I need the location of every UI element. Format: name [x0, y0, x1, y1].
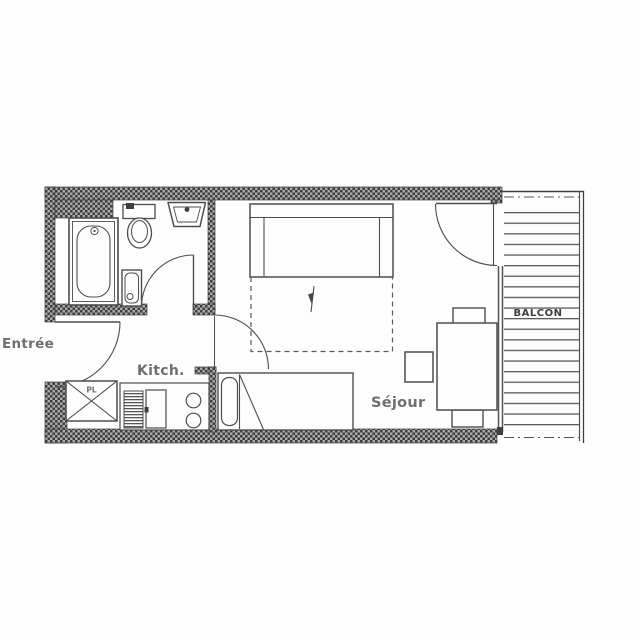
- washbasin-icon: [168, 203, 206, 227]
- balcony-label: BALCON: [514, 308, 563, 319]
- oven-icon: [145, 390, 167, 428]
- sofa-bed-icon: [250, 204, 393, 277]
- wall-bathroom-east: [208, 200, 215, 312]
- fridge-vent-icon: [124, 391, 143, 428]
- wall-bath-pillar: [55, 200, 113, 218]
- balcony-decking-icon: [504, 206, 579, 433]
- living-room-label: Séjour: [371, 395, 426, 411]
- facade-base: [497, 427, 503, 435]
- stool-icon: [405, 352, 433, 382]
- wall-bottom: [45, 429, 497, 443]
- chair-icon: [453, 308, 485, 324]
- entrance-label: Entrée: [2, 336, 54, 352]
- shower-tray-icon: [122, 270, 142, 306]
- dining-table-icon: [437, 308, 497, 427]
- wall-bathroom-south-stub: [193, 304, 215, 315]
- floor-plan: Entrée Kitch. Séjour BALCON PL: [0, 0, 640, 640]
- closet-label: PL: [86, 386, 96, 395]
- single-bed-icon: [218, 373, 353, 430]
- wall-kitchen-east: [209, 367, 216, 432]
- kitchen-label: Kitch.: [137, 363, 185, 379]
- chair-icon: [452, 410, 483, 427]
- floor-plan-page: Entrée Kitch. Séjour BALCON PL: [0, 0, 640, 640]
- wall-top-corner: [491, 200, 502, 203]
- bathtub-icon: [69, 218, 118, 305]
- wall-top: [45, 187, 502, 200]
- wall-left-upper: [45, 187, 55, 322]
